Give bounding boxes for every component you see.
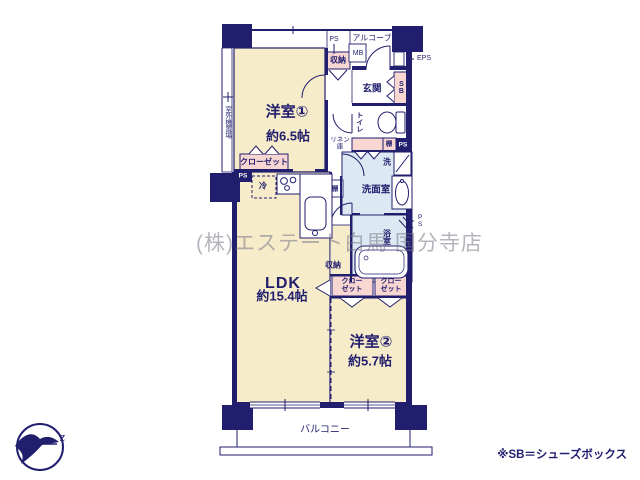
wall-left (232, 172, 237, 402)
closet-left-line2: ゼット (342, 286, 363, 293)
stove-icon (277, 174, 300, 194)
room2-closet-right-label: クローゼット (381, 278, 402, 294)
linen-line2: 庫 (337, 144, 344, 151)
sb-note: ※SB＝シューズボックス (497, 446, 627, 462)
ldk-size: 約15.4帖 (256, 290, 307, 305)
meter-box-label: MB (353, 50, 364, 58)
pillar-bottom-right (395, 405, 427, 430)
ldk-storage-label: 収納 (325, 262, 341, 271)
kitchen-sink-icon (305, 197, 326, 230)
toilet-icon (378, 112, 405, 133)
eps-label: EPS (417, 55, 431, 63)
watermark: (株)エステート白馬 国分寺店 (196, 227, 483, 257)
shoe-box-label: SB (397, 81, 405, 95)
eps-slot (394, 52, 404, 66)
hall-storage-label: 収納 (330, 57, 346, 66)
entrance-label: 玄関 (362, 85, 381, 96)
vanity-sink-icon (392, 176, 412, 209)
closet-right-line1: クロー (381, 278, 402, 285)
toilet-label: トイレ (355, 112, 363, 133)
room1-name: 洋室① (266, 105, 309, 122)
shelf-kitchen-label: 棚 (332, 185, 339, 192)
front-door-arc (366, 46, 390, 70)
room2-name: 洋室② (350, 335, 393, 352)
fridge-label: 冷 (259, 183, 267, 192)
room2-closet-left-label: クローゼット (342, 278, 363, 294)
closet-left-line1: クロー (342, 278, 363, 285)
room1-size: 約6.5帖 (266, 130, 310, 145)
toilet-door-arc (333, 114, 352, 133)
linen-line1: リネン (330, 137, 350, 144)
linen-box (352, 138, 383, 151)
alcove-label: アルコーブ (352, 35, 391, 44)
closet-right-line2: ゼット (381, 286, 402, 293)
ps-left-label: PS (239, 172, 248, 179)
ps-right-label: PS (416, 214, 423, 228)
pillar-top-left (222, 24, 252, 48)
laundry-label: 洗 (383, 159, 391, 168)
pillar-top-right (392, 26, 423, 52)
washroom-label: 洗面室 (362, 186, 391, 197)
floor-plan-canvas: z 洋室① 約6.5帖 LDK 約15.4帖 洋室② 約5.7帖 バルコニー 玄… (0, 0, 640, 480)
ps-mid-label: PS (399, 141, 408, 148)
compass-icon: z (15, 424, 65, 470)
balcony-label: バルコニー (300, 424, 350, 435)
linen-label: リネン庫 (330, 137, 350, 152)
room2-size: 約5.7帖 (348, 355, 392, 370)
outdoor-unit-label: 室外機置場 (223, 106, 230, 139)
washer-icon (394, 152, 411, 175)
compass-letter: z (59, 429, 65, 444)
room1-closet-label: クローゼット (240, 159, 288, 168)
balcony-rail (220, 447, 432, 455)
room2-floor (330, 298, 408, 405)
ps-top-label: PS (329, 36, 338, 44)
shelf-hall-label: 棚 (386, 140, 393, 147)
